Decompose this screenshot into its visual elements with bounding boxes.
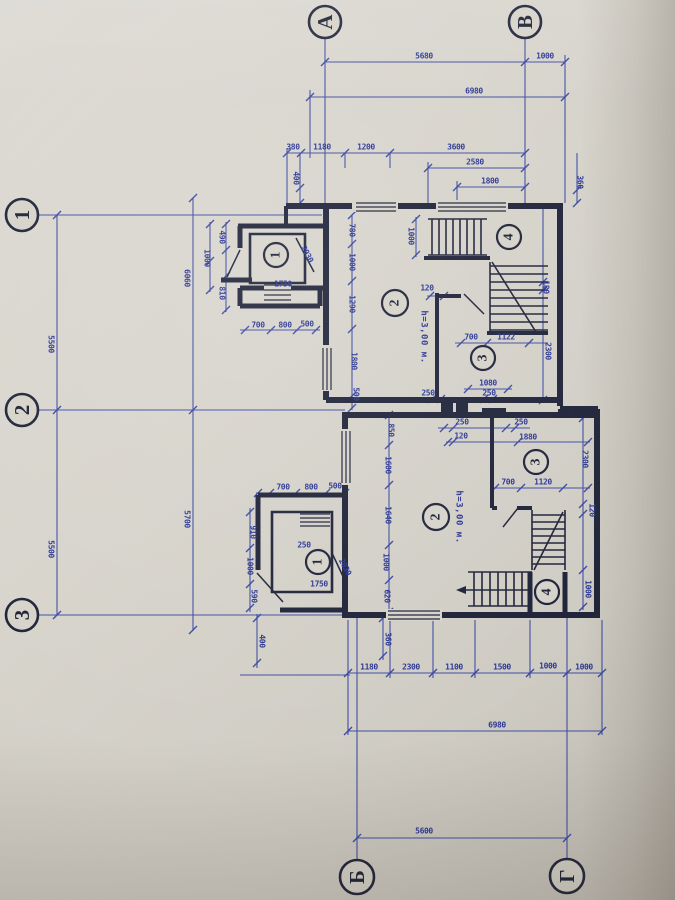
dimension-label: 6980 bbox=[465, 87, 483, 96]
grid-axis-markers: А В 1 2 3 Б Г bbox=[6, 6, 584, 894]
dimension-label: 1100 bbox=[445, 663, 463, 672]
dimension-label: 1180 bbox=[313, 143, 331, 152]
dimension-label: 500 bbox=[352, 387, 361, 401]
dimension-label: 6060 bbox=[183, 269, 192, 287]
dimension-label: 3600 bbox=[447, 143, 465, 152]
dimension-label: 120 bbox=[420, 284, 434, 293]
floor-plan-svg: А В 1 2 3 Б Г 1 2 3 4 1 2 3 4 h=3,00 м. … bbox=[0, 0, 675, 900]
dimension-label: 1750 bbox=[274, 280, 292, 289]
dimension-label: 2580 bbox=[466, 158, 484, 167]
dimension-label: 1000 bbox=[203, 249, 212, 267]
room-number: 3 bbox=[529, 459, 544, 466]
door-leaves bbox=[227, 238, 518, 602]
dimension-label: 700 bbox=[501, 478, 515, 487]
dimension-label: 1000 bbox=[584, 580, 593, 598]
axis-label-A: А bbox=[313, 14, 337, 30]
room-number: 4 bbox=[540, 589, 555, 596]
dimension-label: 1800 bbox=[350, 352, 359, 370]
axis-label-V: В bbox=[513, 15, 537, 29]
dimension-label: 700 bbox=[464, 333, 478, 342]
dimension-label: 250 bbox=[514, 418, 528, 427]
axis-label-2: 2 bbox=[10, 405, 34, 416]
dimension-label: 5500 bbox=[47, 540, 56, 558]
dimension-label: 250 bbox=[455, 418, 469, 427]
dimension-label: 120 bbox=[588, 503, 597, 517]
axis-label-1: 1 bbox=[10, 210, 34, 221]
dimension-label: 2300 bbox=[581, 450, 590, 468]
dimension-label: 810 bbox=[218, 286, 227, 300]
axis-label-B: Б bbox=[345, 870, 369, 884]
axis-label-3: 3 bbox=[10, 610, 34, 621]
dimension-label: 400 bbox=[258, 634, 267, 648]
dimension-ticks bbox=[53, 58, 606, 842]
room-number: 1 bbox=[269, 252, 284, 259]
dimension-label: 180 bbox=[542, 280, 551, 294]
dimension-label: 1290 bbox=[348, 295, 357, 313]
dimension-label: 1000 bbox=[575, 663, 593, 672]
room-number: 2 bbox=[429, 514, 444, 521]
dimension-label: 1000 bbox=[539, 662, 557, 671]
room-number: 4 bbox=[502, 234, 517, 241]
dimension-label: 590 bbox=[250, 589, 259, 603]
dimension-label: 910 bbox=[249, 525, 258, 539]
dimension-label: 1000 bbox=[382, 553, 391, 571]
dimension-label: 1600 bbox=[384, 456, 393, 474]
photographed-blueprint: А В 1 2 3 Б Г 1 2 3 4 1 2 3 4 h=3,00 м. … bbox=[0, 0, 675, 900]
dimension-label: 700 bbox=[251, 321, 265, 330]
dimension-label: 780 bbox=[348, 223, 357, 237]
dimension-label: 800 bbox=[304, 483, 318, 492]
dimension-label: 500 bbox=[328, 482, 342, 491]
dimension-label: 620 bbox=[383, 589, 392, 603]
dimension-label: 1500 bbox=[493, 663, 511, 672]
dimension-label: 500 bbox=[300, 320, 314, 329]
dimension-label: 1000 bbox=[246, 557, 255, 575]
dimension-label: 1180 bbox=[360, 663, 378, 672]
dimension-label: 850 bbox=[387, 423, 396, 437]
dimension-label: 1080 bbox=[479, 379, 497, 388]
dimension-label: 2300 bbox=[402, 663, 420, 672]
dimension-label: 700 bbox=[276, 483, 290, 492]
dimension-label: 6980 bbox=[488, 721, 506, 730]
dimension-label: 490 bbox=[218, 230, 227, 244]
dimension-label: 5680 bbox=[415, 52, 433, 61]
dimension-label: 1000 bbox=[536, 52, 554, 61]
dimension-label: 120 bbox=[454, 432, 468, 441]
dimension-label: 1000 bbox=[407, 227, 416, 245]
dimension-label: 1120 bbox=[534, 478, 552, 487]
room-number: 2 bbox=[388, 300, 403, 307]
axis-label-G: Г bbox=[555, 869, 579, 882]
dimension-labels: 5680100069803801180120036002580180040036… bbox=[47, 52, 597, 836]
dimension-lines bbox=[38, 38, 602, 860]
room-number: 3 bbox=[476, 355, 491, 362]
dimension-label: 1122 bbox=[497, 333, 515, 342]
room-height-label: h=3,00 м. bbox=[454, 490, 464, 543]
dimension-label: 250 bbox=[482, 389, 496, 398]
dimension-label: 360 bbox=[384, 632, 393, 646]
dimension-label: 2030 bbox=[299, 244, 316, 264]
room-number: 1 bbox=[311, 559, 326, 566]
dimension-label: 360 bbox=[576, 175, 585, 189]
dimension-label: 1000 bbox=[348, 253, 357, 271]
dimension-label: 250 bbox=[421, 389, 435, 398]
dimension-label: 400 bbox=[292, 171, 301, 185]
dimension-label: 1880 bbox=[519, 433, 537, 442]
stair-direction-arrow bbox=[456, 586, 466, 594]
dimension-label: 1750 bbox=[310, 580, 328, 589]
dimension-label: 1200 bbox=[357, 143, 375, 152]
dimension-label: 2300 bbox=[544, 342, 553, 360]
dimension-label: 380 bbox=[286, 143, 300, 152]
dimension-label: 5600 bbox=[415, 827, 433, 836]
dimension-label: 250 bbox=[297, 541, 311, 550]
dimension-label: 800 bbox=[278, 321, 292, 330]
dimension-label: 1800 bbox=[481, 177, 499, 186]
room-height-label: h=3,00 м. bbox=[419, 310, 429, 363]
dimension-label: 1640 bbox=[384, 506, 393, 524]
dimension-label: 5700 bbox=[183, 510, 192, 528]
dimension-label: 5500 bbox=[47, 335, 56, 353]
